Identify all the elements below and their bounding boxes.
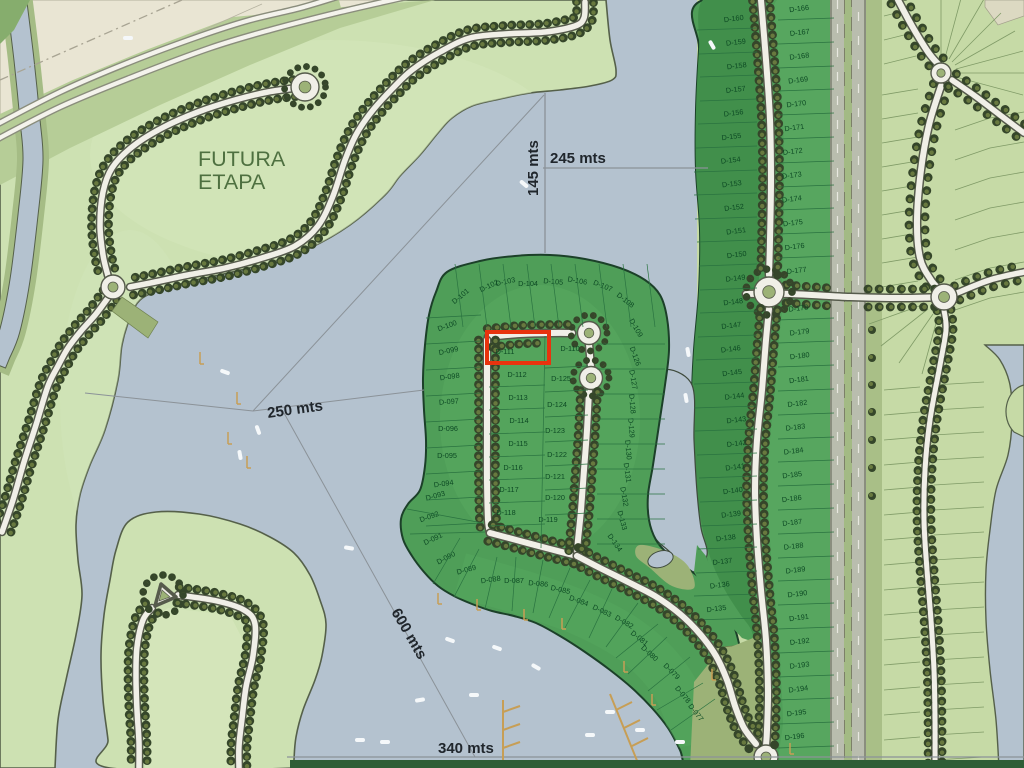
- svg-text:D-104: D-104: [518, 279, 538, 288]
- svg-text:145 mts: 145 mts: [525, 140, 542, 196]
- svg-text:340 mts: 340 mts: [438, 740, 494, 757]
- svg-text:D-095: D-095: [437, 451, 457, 460]
- svg-text:D-125: D-125: [551, 374, 571, 383]
- svg-text:D-129: D-129: [626, 417, 637, 438]
- svg-text:D-096: D-096: [438, 424, 458, 433]
- svg-text:D-118: D-118: [496, 508, 515, 517]
- svg-text:D-123: D-123: [545, 426, 565, 435]
- svg-text:D-121: D-121: [545, 472, 565, 481]
- svg-text:D-097: D-097: [439, 396, 459, 406]
- svg-text:FUTURA: FUTURA: [198, 147, 286, 171]
- svg-text:245 mts: 245 mts: [550, 150, 606, 167]
- svg-text:D-114: D-114: [509, 416, 528, 425]
- svg-text:D-117: D-117: [499, 485, 518, 494]
- svg-text:D-115: D-115: [508, 439, 527, 448]
- svg-text:D-128: D-128: [627, 393, 638, 414]
- svg-text:D-113: D-113: [508, 393, 527, 402]
- svg-text:D-112: D-112: [507, 370, 526, 379]
- svg-text:D-120: D-120: [545, 493, 565, 502]
- svg-text:D-130: D-130: [623, 439, 634, 460]
- svg-text:D-116: D-116: [503, 463, 522, 472]
- svg-text:D-110: D-110: [560, 344, 579, 353]
- svg-text:D-122: D-122: [547, 450, 567, 459]
- svg-text:D-124: D-124: [547, 400, 567, 409]
- svg-text:ETAPA: ETAPA: [198, 170, 266, 194]
- svg-text:D-111: D-111: [496, 347, 515, 356]
